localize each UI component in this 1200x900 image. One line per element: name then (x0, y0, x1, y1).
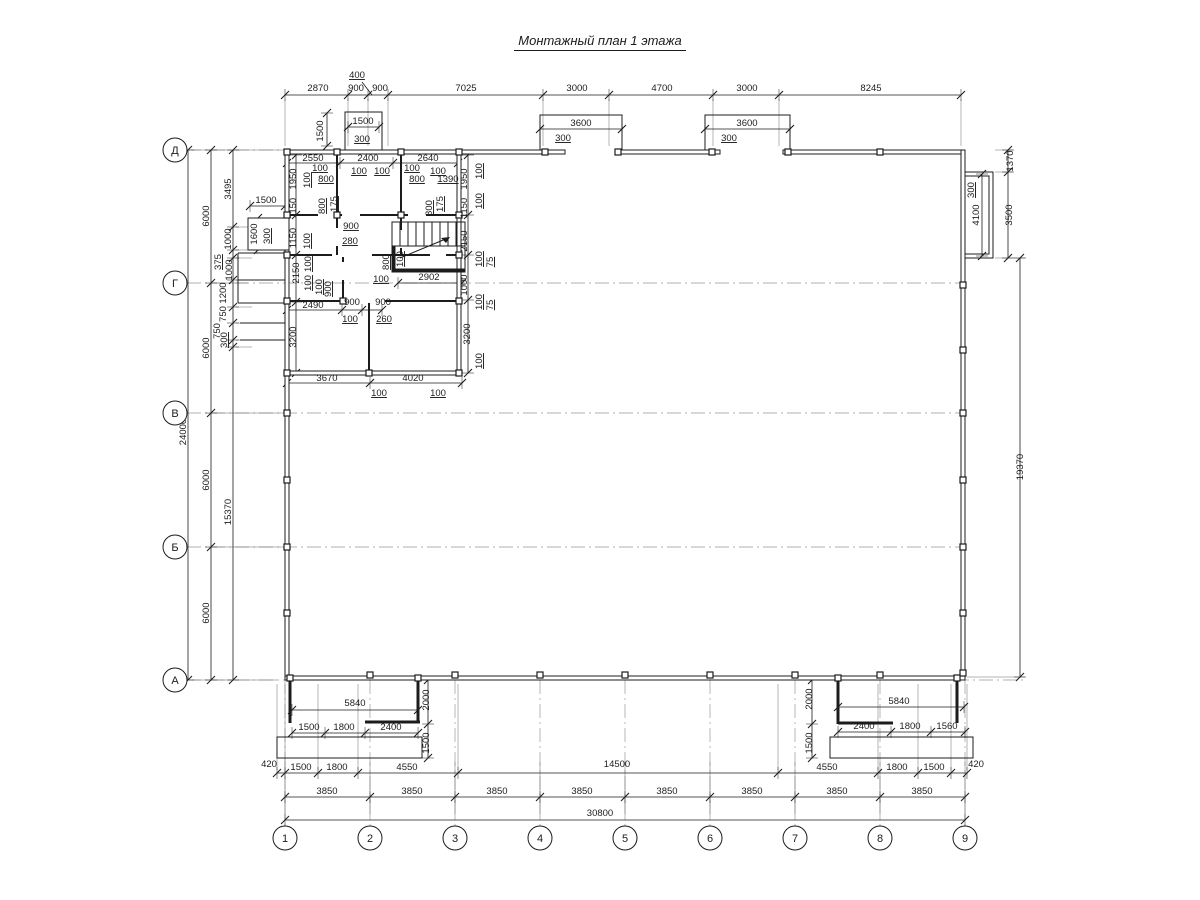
dim-label: 100 (303, 275, 314, 291)
dim-label: 15370 (223, 499, 234, 525)
dim-label: 3850 (401, 786, 422, 797)
dim-label: 175 (329, 196, 340, 212)
column-marker (877, 149, 883, 155)
dim-label: 6000 (201, 205, 212, 226)
dim-label: 2870 (307, 83, 328, 94)
dim-label: 400 (349, 70, 365, 81)
left-steps (238, 253, 285, 340)
axis-marker-col: 1 (273, 826, 297, 850)
dim-label: 6000 (201, 602, 212, 623)
axis-marker-row: А (163, 668, 187, 692)
dim-label: 100 (430, 388, 446, 399)
axis-marker-col: 6 (698, 826, 722, 850)
column-marker (284, 298, 290, 304)
dim-label: 1200 (218, 282, 229, 303)
column-marker (960, 282, 966, 288)
axis-marker-col: 9 (953, 826, 977, 850)
dim-label: 2150 (291, 262, 302, 283)
dim-label: 14500 (604, 759, 630, 770)
dim-label: 100 (474, 163, 485, 179)
dim-label: 2400 (380, 722, 401, 733)
dim-label: 900 (348, 83, 364, 94)
dim-label: 3000 (736, 83, 757, 94)
dim-label: 300 (555, 133, 571, 144)
dim-label: 900 (343, 221, 359, 232)
axis-label: 3 (452, 833, 458, 845)
axis-label: 1 (282, 833, 288, 845)
dim-label: 3850 (486, 786, 507, 797)
column-marker (287, 675, 293, 681)
axis-label: Г (172, 278, 178, 290)
column-marker (622, 672, 628, 678)
column-marker (954, 675, 960, 681)
dim-label: 3850 (316, 786, 337, 797)
axis-marker-row: В (163, 401, 187, 425)
dim-label: 100 (474, 251, 485, 267)
dim-label: 1560 (936, 721, 957, 732)
dim-label: 1000 (224, 259, 235, 280)
dim-label: 1150 (288, 228, 299, 248)
dimension-chains (182, 89, 1026, 826)
dim-label: 19370 (1015, 454, 1026, 480)
dim-label: 750 (218, 306, 229, 322)
column-marker (835, 675, 841, 681)
column-marker (456, 298, 462, 304)
column-marker (785, 149, 791, 155)
axis-label: А (171, 675, 179, 687)
porch-right (830, 680, 973, 758)
dim-label: 1500 (421, 732, 432, 753)
dim-label: 100 (474, 294, 485, 310)
axis-label: 2 (367, 833, 373, 845)
top-wall-segment (461, 150, 565, 154)
dim-label: 7025 (455, 83, 476, 94)
axis-label: 8 (877, 833, 883, 845)
dim-label: 300 (262, 228, 273, 244)
dim-label: 1370 (1005, 150, 1016, 171)
building-walls (238, 82, 993, 758)
axis-label: 9 (962, 833, 968, 845)
column-markers (284, 149, 966, 681)
dim-label: 100 (371, 388, 387, 399)
dim-label: 1500 (923, 762, 944, 773)
axis-marker-col: 7 (783, 826, 807, 850)
dim-label: 260 (376, 314, 392, 325)
dim-label: 75 (485, 257, 496, 268)
dim-label: 100 (374, 166, 390, 177)
column-marker (452, 672, 458, 678)
dim-label: 100 (302, 172, 313, 188)
dim-label: 2902 (418, 272, 439, 283)
dim-label: 420 (968, 759, 984, 770)
column-marker (284, 544, 290, 550)
dim-label: 1150 (459, 198, 470, 218)
column-marker (456, 149, 462, 155)
dim-label: 3850 (656, 786, 677, 797)
dim-label: 75 (485, 300, 496, 311)
column-marker (709, 149, 715, 155)
floor-plan-canvas: 2870400900900702530004700300082451500150… (0, 0, 1200, 900)
column-marker (615, 149, 621, 155)
dim-label: 6000 (201, 469, 212, 490)
axis-marker-col: 4 (528, 826, 552, 850)
drawing-title: Монтажный план 1 этажа (0, 33, 1200, 48)
dim-label: 900 (372, 83, 388, 94)
dim-label: 3850 (911, 786, 932, 797)
axis-label: Б (171, 542, 178, 554)
axis-marker-col: 5 (613, 826, 637, 850)
dim-label: 1390 (437, 174, 458, 185)
column-marker (284, 370, 290, 376)
dim-label: 8245 (860, 83, 881, 94)
dim-label: 100 (373, 274, 389, 285)
dim-label: 900 (344, 297, 360, 308)
dim-label: 5840 (888, 696, 909, 707)
drawing-title-text: Монтажный план 1 этажа (514, 33, 685, 51)
dim-label: 900 (323, 281, 334, 297)
dim-label: 800 (409, 174, 425, 185)
dim-label: 1950 (459, 168, 470, 189)
axis-marker-row: Б (163, 535, 187, 559)
column-marker (542, 149, 548, 155)
dim-label: 800 (381, 254, 392, 270)
dim-label: 1000 (223, 228, 234, 249)
dim-label: 2400 (853, 721, 874, 732)
axis-label: 4 (537, 833, 543, 845)
dim-label: 3850 (741, 786, 762, 797)
dim-label: 1500 (315, 120, 326, 141)
dim-label: 800 (424, 200, 435, 216)
column-marker (367, 672, 373, 678)
dim-label: 2000 (421, 689, 432, 710)
dim-label: 100 (404, 163, 420, 174)
dim-label: 100 (395, 251, 406, 267)
dim-label: 1500 (255, 195, 276, 206)
column-marker (960, 670, 966, 676)
dim-label: 3200 (462, 323, 473, 344)
column-marker (960, 610, 966, 616)
block-bottom-wall (285, 371, 461, 375)
column-marker (960, 347, 966, 353)
dim-label: 2640 (417, 153, 438, 164)
dim-label: 1500 (804, 732, 815, 753)
column-marker (284, 149, 290, 155)
dim-label: 1600 (249, 223, 260, 244)
dim-label: 900 (375, 297, 391, 308)
dim-label: 3850 (571, 786, 592, 797)
dim-label: 3000 (566, 83, 587, 94)
column-marker (284, 410, 290, 416)
column-marker (284, 252, 290, 258)
dim-label: 300 (219, 332, 230, 348)
dim-label: 3670 (316, 373, 337, 384)
dim-label: 3200 (288, 326, 299, 347)
dim-label: 1150 (288, 198, 299, 218)
dim-label: 30800 (587, 808, 613, 819)
dim-label: 100 (303, 256, 314, 272)
column-marker (334, 149, 340, 155)
column-marker (960, 477, 966, 483)
column-marker (707, 672, 713, 678)
axis-marker-col: 3 (443, 826, 467, 850)
dim-label: 4550 (396, 762, 417, 773)
axis-marker-col: 8 (868, 826, 892, 850)
dim-label: 3495 (223, 178, 234, 199)
dimension-labels: 2870400900900702530004700300082451500150… (178, 70, 1026, 819)
dim-label: 1800 (333, 722, 354, 733)
dim-label: 100 (312, 163, 328, 174)
axis-label: 5 (622, 833, 628, 845)
dim-label: 5840 (344, 698, 365, 709)
dim-label: 280 (342, 236, 358, 247)
dim-label: 2400 (357, 153, 378, 164)
dim-label: 1800 (899, 721, 920, 732)
dim-label: 1000 (459, 274, 470, 295)
column-marker (792, 672, 798, 678)
dim-label: 1500 (298, 722, 319, 733)
axis-label: 7 (792, 833, 798, 845)
dim-label: 3600 (736, 118, 757, 129)
axis-marker-row: Д (163, 138, 187, 162)
axis-marker-col: 2 (358, 826, 382, 850)
dim-label: 300 (966, 182, 977, 198)
dim-label: 100 (474, 193, 485, 209)
dim-label: 4100 (971, 204, 982, 225)
column-marker (456, 252, 462, 258)
dim-label: 100 (351, 166, 367, 177)
dim-label: 420 (261, 759, 277, 770)
dim-label: 4550 (816, 762, 837, 773)
top-wall-segment (615, 150, 720, 154)
dim-label: 100 (474, 353, 485, 369)
column-marker (284, 477, 290, 483)
axis-marker-row: Г (163, 271, 187, 295)
dim-label: 375 (213, 254, 224, 270)
dim-label: 2490 (302, 300, 323, 311)
dim-label: 3850 (826, 786, 847, 797)
dim-label: 4700 (651, 83, 672, 94)
dim-label: 300 (354, 134, 370, 145)
column-marker (415, 675, 421, 681)
dim-label: 1500 (352, 116, 373, 127)
column-marker (456, 370, 462, 376)
dim-label: 1950 (288, 168, 299, 189)
dim-label: 4020 (402, 373, 423, 384)
dim-label: 1800 (326, 762, 347, 773)
dim-label: 1800 (886, 762, 907, 773)
axis-label: Д (171, 145, 179, 157)
dim-label: 6000 (201, 337, 212, 358)
dim-label: 2000 (804, 688, 815, 709)
dim-label: 1500 (290, 762, 311, 773)
column-marker (960, 410, 966, 416)
porch-left (277, 680, 422, 758)
axis-label: 6 (707, 833, 713, 845)
column-marker (960, 544, 966, 550)
dim-label: 100 (302, 233, 313, 249)
dim-label: 3600 (570, 118, 591, 129)
column-marker (537, 672, 543, 678)
axis-label: В (171, 408, 178, 420)
dim-label: 100 (342, 314, 358, 325)
column-marker (398, 212, 404, 218)
column-marker (398, 149, 404, 155)
column-marker (366, 370, 372, 376)
column-marker (877, 672, 883, 678)
dim-label: 175 (435, 196, 446, 212)
dim-label: 300 (721, 133, 737, 144)
drawing-page: Монтажный план 1 этажа (0, 0, 1200, 900)
dim-label: 2150 (459, 230, 470, 251)
dim-label: 3500 (1004, 204, 1015, 225)
top-wall-segment (783, 150, 965, 154)
dim-label: 800 (318, 174, 334, 185)
column-marker (284, 610, 290, 616)
dim-label: 800 (317, 198, 328, 214)
